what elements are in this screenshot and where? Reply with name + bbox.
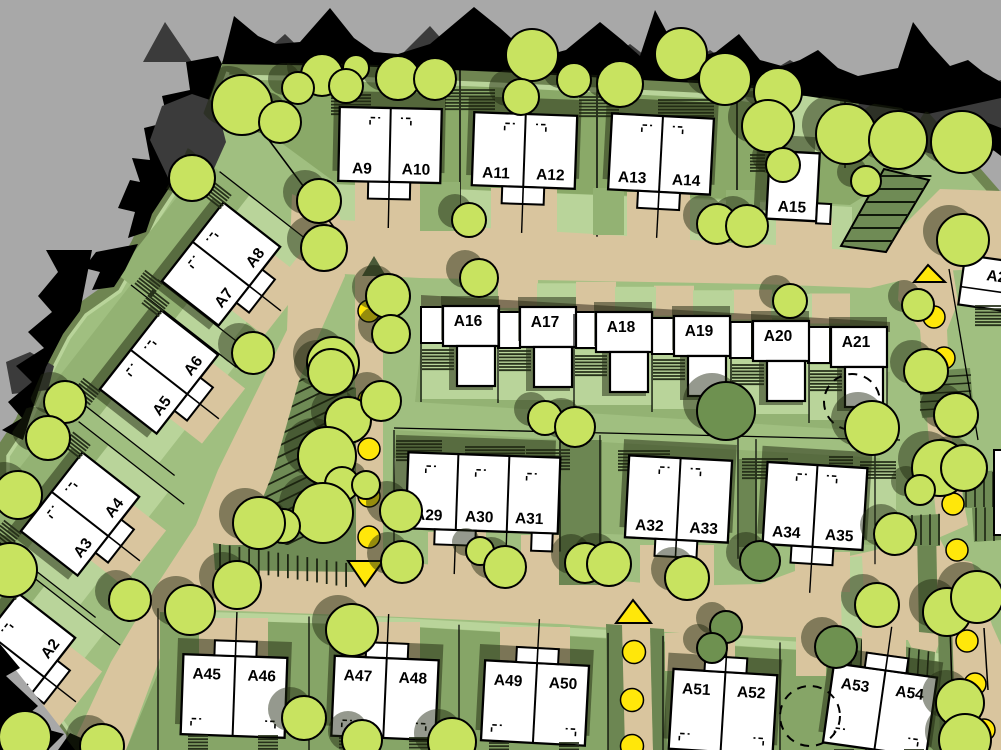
svg-text:A45: A45	[192, 666, 221, 684]
svg-text:A35: A35	[825, 527, 855, 546]
svg-text:A31: A31	[515, 510, 544, 528]
svg-text:A50: A50	[548, 675, 577, 693]
svg-text:A12: A12	[536, 166, 565, 184]
svg-text:A17: A17	[531, 314, 559, 331]
svg-text:A13: A13	[618, 169, 648, 187]
svg-text:A9: A9	[352, 160, 373, 177]
svg-text:A51: A51	[682, 680, 712, 699]
svg-text:A21: A21	[842, 334, 871, 351]
svg-text:A10: A10	[402, 161, 431, 179]
svg-text:A32: A32	[635, 517, 664, 535]
svg-text:A15: A15	[777, 198, 807, 216]
svg-text:A34: A34	[772, 523, 802, 542]
svg-text:A30: A30	[465, 508, 494, 526]
svg-text:A16: A16	[454, 313, 483, 330]
svg-text:A48: A48	[398, 670, 428, 688]
svg-text:A46: A46	[247, 667, 276, 685]
svg-text:A11: A11	[482, 165, 511, 183]
svg-text:A18: A18	[607, 319, 636, 336]
svg-text:A2: A2	[986, 267, 1001, 287]
svg-text:A19: A19	[685, 323, 714, 340]
svg-text:A33: A33	[689, 520, 719, 538]
svg-text:A14: A14	[671, 172, 701, 190]
svg-text:A20: A20	[764, 328, 792, 345]
svg-text:A47: A47	[343, 667, 372, 685]
svg-text:A49: A49	[493, 672, 523, 690]
svg-text:A52: A52	[736, 684, 765, 703]
